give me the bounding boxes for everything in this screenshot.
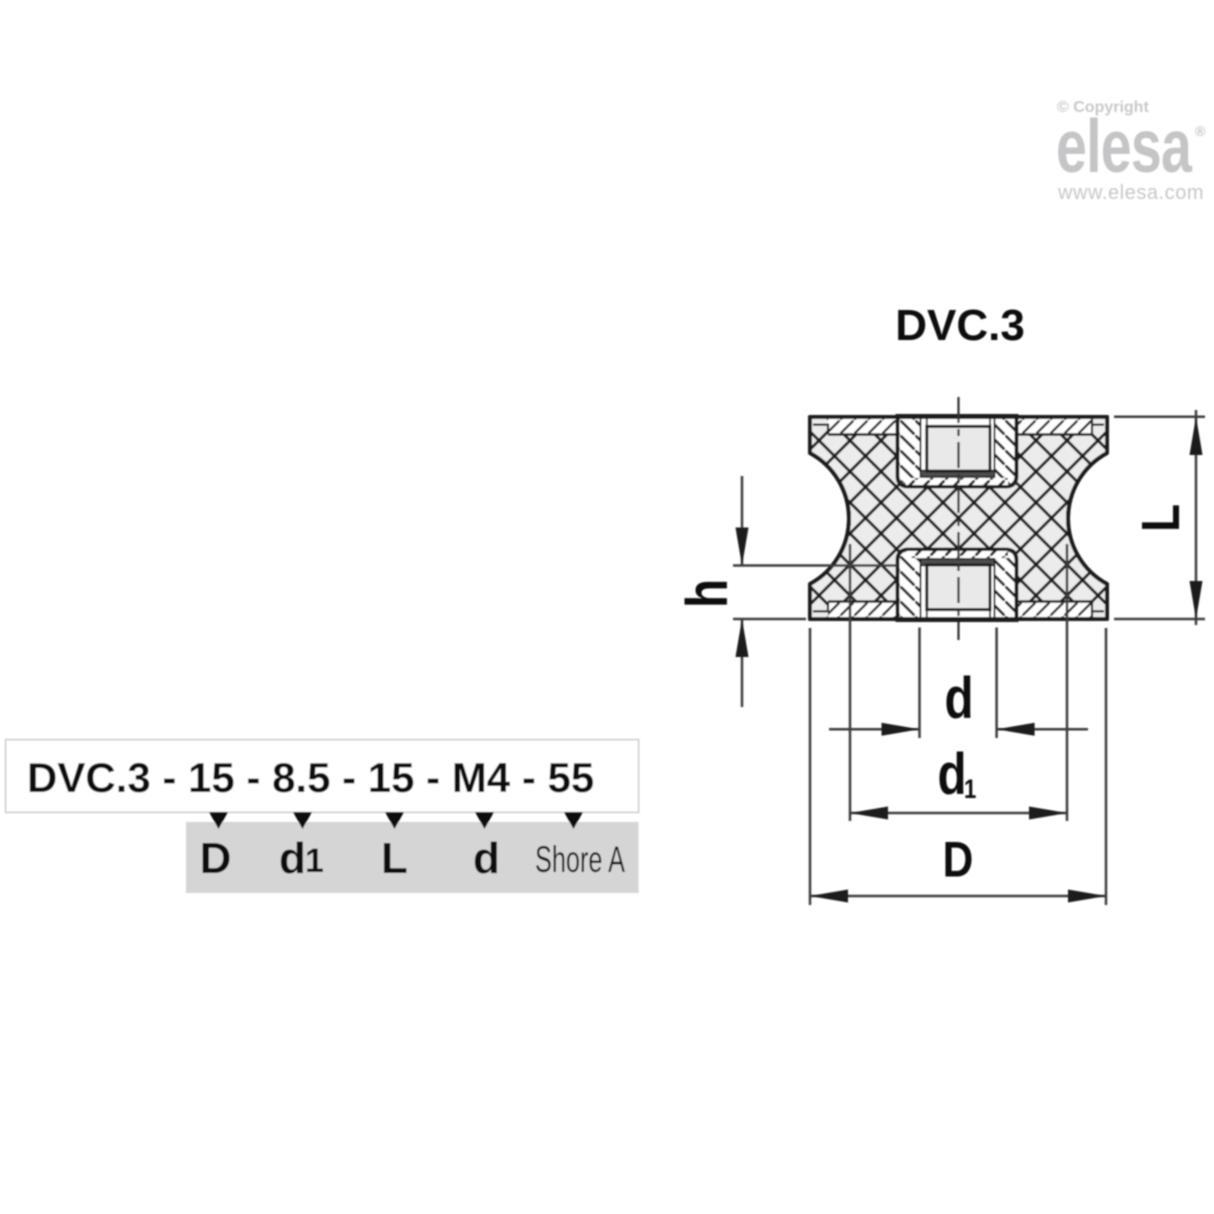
svg-text:1: 1: [964, 775, 977, 805]
svg-text:d: d: [937, 743, 966, 808]
svg-text:L: L: [381, 834, 408, 883]
svg-text:h: h: [676, 579, 741, 608]
svg-text:www.elesa.com: www.elesa.com: [1057, 182, 1204, 204]
svg-text:d: d: [473, 834, 500, 883]
svg-text:elesa: elesa: [1056, 104, 1193, 188]
svg-text:DVC.3 - 15 - 8.5 - 15 - M4 - 5: DVC.3 - 15 - 8.5 - 15 - M4 - 55: [27, 754, 594, 801]
svg-text:d: d: [279, 834, 306, 883]
svg-text:Shore A: Shore A: [535, 839, 625, 880]
svg-text:L: L: [1131, 504, 1191, 532]
svg-text:D: D: [943, 831, 974, 887]
svg-text:®: ®: [1195, 123, 1206, 139]
svg-text:d: d: [944, 667, 973, 732]
svg-text:DVC.3: DVC.3: [895, 301, 1025, 350]
svg-text:D: D: [200, 834, 232, 883]
svg-text:1: 1: [305, 842, 324, 880]
